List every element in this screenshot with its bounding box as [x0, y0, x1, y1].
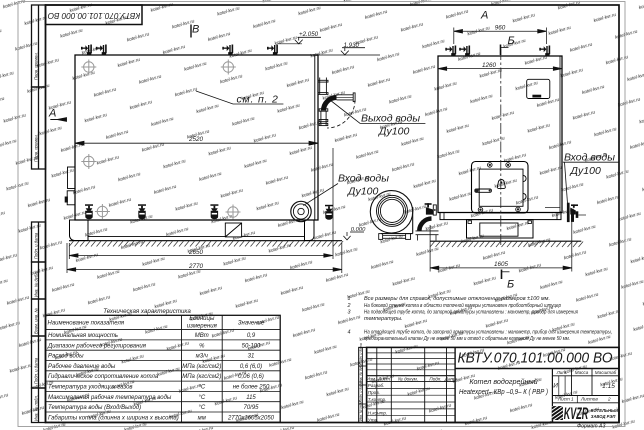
svg-text:ЗАВОД РЭП: ЗАВОД РЭП [591, 414, 616, 419]
svg-text:2650: 2650 [188, 249, 204, 256]
svg-text:2: 2 [347, 303, 351, 309]
svg-text:Единицы: Единицы [189, 316, 215, 322]
svg-text:температуры.: температуры. [364, 316, 403, 322]
svg-text:Значение: Значение [238, 321, 265, 327]
svg-text:0,06 (0,6): 0,06 (0,6) [238, 374, 264, 380]
svg-text:2520: 2520 [188, 136, 204, 143]
svg-text:1:15: 1:15 [602, 383, 615, 390]
svg-text:Выход воды: Выход воды [361, 113, 420, 125]
svg-text:1260: 1260 [482, 62, 497, 69]
svg-text:В: В [192, 23, 199, 35]
svg-text:Перв. примен.: Перв. примен. [33, 52, 38, 80]
svg-text:°С: °С [198, 405, 205, 411]
svg-text:м3/ч: м3/ч [196, 354, 208, 360]
svg-text:Диапазон рабочего регулировани: Диапазон рабочего регулирования [47, 343, 147, 349]
svg-text:2770: 2770 [188, 263, 204, 270]
svg-text:Утв.: Утв. [368, 417, 378, 422]
svg-text:1: 1 [571, 397, 574, 402]
svg-text:Лист: Лист [377, 376, 390, 381]
svg-text:Дата: Дата [444, 376, 458, 381]
svg-text:2: 2 [607, 397, 611, 402]
svg-text:Ду100: Ду100 [347, 186, 378, 198]
svg-text:На отводящей трубе котла, до з: На отводящей трубе котла, до запорной ар… [364, 329, 612, 336]
svg-text:И: И [553, 383, 558, 390]
svg-text:Подп. и дата: Подп. и дата [359, 381, 363, 402]
svg-text:Рабочее давление воды: Рабочее давление воды [48, 364, 116, 370]
svg-text:не более 250: не более 250 [233, 385, 270, 391]
svg-text:предохранительный клапан Ду н: предохранительный клапан Ду не менее 50 … [364, 335, 570, 342]
svg-text:Вход воды: Вход воды [338, 173, 389, 185]
svg-text:960: 960 [495, 24, 506, 31]
svg-text:%: % [199, 343, 205, 349]
svg-text:КОТЕЛЬНЫЙ: КОТЕЛЬНЫЙ [591, 408, 619, 413]
svg-text:Пров.: Пров. [368, 390, 380, 395]
svg-text:Инв. № подл.: Инв. № подл. [33, 395, 38, 421]
svg-text:На подводящей трубе котла, до: На подводящей трубе котла, до запорной а… [364, 309, 578, 316]
svg-text:Лист: Лист [557, 397, 570, 402]
svg-text:Подп. и дата: Подп. и дата [359, 343, 363, 364]
svg-text:70/95: 70/95 [243, 405, 259, 411]
svg-text:50-100: 50-100 [242, 343, 261, 349]
svg-text:Лит.: Лит. [556, 370, 568, 375]
svg-text:Расход воды: Расход воды [48, 354, 84, 360]
svg-text:Котел водогрейный: Котел водогрейный [469, 377, 537, 386]
svg-text:0,6 (6,0): 0,6 (6,0) [240, 364, 262, 370]
svg-text:Инв. № дубл.: Инв. № дубл. [359, 363, 363, 384]
svg-text:Изм.: Изм. [367, 376, 377, 381]
svg-text:Н.контр.: Н.контр. [368, 411, 387, 416]
svg-text:МПа (кгс/см2): МПа (кгс/см2) [182, 374, 221, 380]
svg-text:Взам. инв. №: Взам. инв. № [33, 308, 38, 334]
svg-text:А: А [480, 10, 488, 22]
svg-text:Наименование показателя: Наименование показателя [48, 321, 125, 327]
svg-text:Подп. и дата: Подп. и дата [33, 357, 38, 384]
svg-text:Все размеры для справок, допус: Все размеры для справок, допустимые откл… [364, 296, 550, 302]
svg-text:Перв. примен.: Перв. примен. [33, 134, 38, 162]
svg-text:Максимальная рабочая температу: Максимальная рабочая температура воды [48, 395, 172, 401]
svg-text:Т.контр.: Т.контр. [368, 397, 387, 402]
svg-text:Инв. № подл.: Инв. № подл. [359, 400, 363, 421]
svg-text:°С: °С [198, 385, 205, 391]
svg-text:Номинальная мощность: Номинальная мощность [48, 333, 118, 339]
svg-text:Гидравлическое сопротивление к: Гидравлическое сопротивление котла [48, 374, 159, 380]
svg-text:31: 31 [248, 354, 255, 360]
svg-text:Габариты котла (длинна х ширин: Габариты котла (длинна х ширина х высота… [48, 415, 179, 421]
svg-text:1605: 1605 [494, 261, 509, 268]
svg-text:Масса: Масса [575, 370, 589, 375]
svg-text:А: А [48, 108, 56, 120]
svg-text:измерения: измерения [187, 324, 218, 330]
svg-text:4: 4 [348, 330, 351, 336]
svg-text:Ду100: Ду100 [570, 165, 601, 177]
svg-text:МПа (кгс/см2): МПа (кгс/см2) [182, 364, 221, 370]
svg-text:Разраб.: Разраб. [368, 383, 385, 388]
svg-text:°С: °С [198, 395, 205, 401]
svg-text:мм: мм [198, 415, 206, 421]
svg-text:Heatexpert– КВр –0,9– К ( РВР: Heatexpert– КВр –0,9– К ( РВР ) [459, 387, 548, 396]
svg-text:Листов: Листов [580, 397, 598, 402]
svg-text:Температура воды (Вход/Выход): Температура воды (Вход/Выход) [48, 405, 141, 411]
svg-text:Подп. и дата: Подп. и дата [33, 232, 38, 259]
svg-text:Ду100: Ду100 [378, 126, 409, 138]
svg-text:КВТУ.070.101.00.000 ВО: КВТУ.070.101.00.000 ВО [47, 11, 140, 20]
svg-text:см. п. 2: см. п. 2 [237, 93, 279, 105]
svg-text:1: 1 [348, 296, 351, 302]
svg-text:Вход воды: Вход воды [564, 151, 615, 163]
svg-text:Инв. № дубл.: Инв. № дубл. [33, 271, 38, 297]
svg-text:Б: Б [508, 35, 515, 47]
svg-text:№ докум.: № докум. [398, 376, 418, 381]
svg-text:0,9: 0,9 [247, 333, 256, 339]
svg-text:Техническая характеристика: Техническая характеристика [103, 308, 191, 315]
svg-text:KVZR: KVZR [564, 404, 589, 423]
svg-text:Масштаб: Масштаб [595, 370, 617, 375]
svg-text:МВт: МВт [195, 333, 209, 339]
svg-text:КВТУ.070.101.00.000 ВО: КВТУ.070.101.00.000 ВО [458, 351, 613, 367]
svg-text:Подп.: Подп. [429, 376, 441, 381]
svg-text:2770х1605х2050: 2770х1605х2050 [227, 415, 275, 421]
svg-text:115: 115 [246, 395, 256, 401]
svg-text:Формат А3: Формат А3 [577, 423, 605, 429]
svg-text:3: 3 [348, 310, 351, 316]
svg-text:Б: Б [507, 279, 514, 291]
svg-text:На боковой стенке котла в обла: На боковой стенке котла в области топочн… [364, 302, 561, 309]
svg-text:Температура уходящих газов: Температура уходящих газов [48, 385, 133, 391]
